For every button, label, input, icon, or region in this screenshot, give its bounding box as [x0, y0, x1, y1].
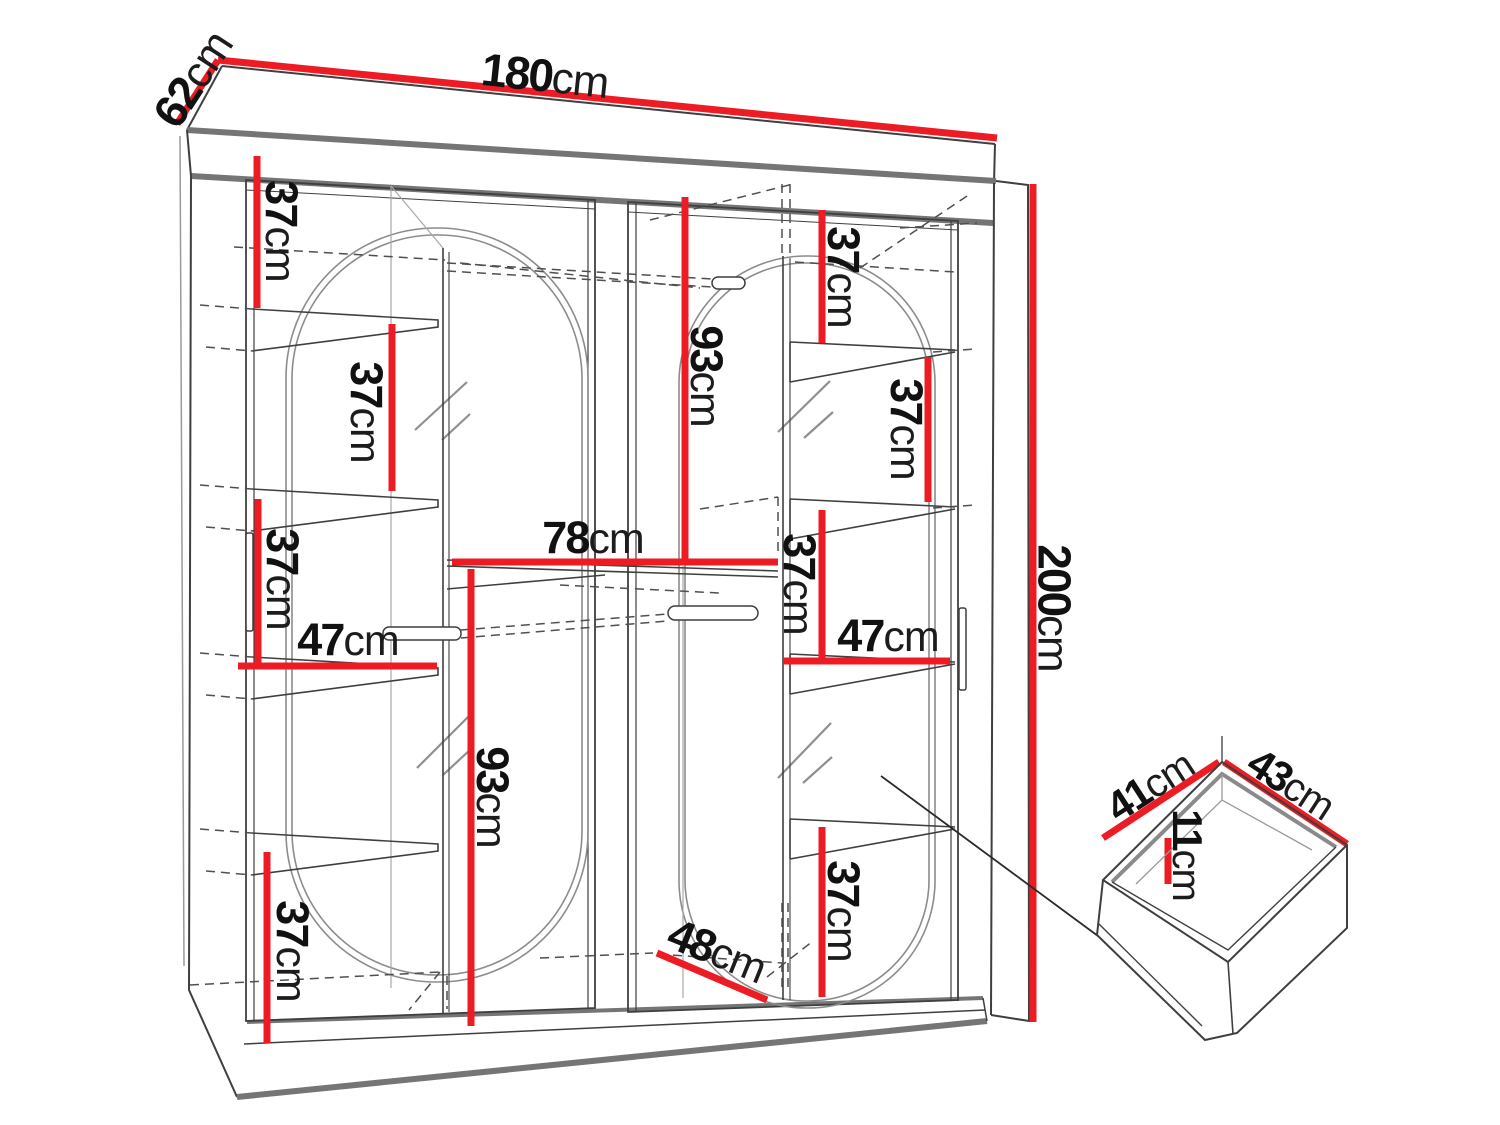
dim-line-overall-depth: [177, 60, 218, 124]
drawer-leader-line: [881, 776, 1098, 936]
dim-line-overall-width: [218, 60, 997, 138]
hanging-rod-right: [668, 606, 758, 620]
wardrobe-dimension-diagram: 180cm62cm200cm37cm37cm37cm47cm93cm37cm78…: [0, 0, 1500, 1125]
right-mirror: [679, 256, 935, 1008]
interior-dividers: [391, 186, 790, 1014]
dim-line-drawer-depth: [1103, 762, 1219, 838]
mirror-glints: [415, 381, 833, 783]
cabinet-base: [237, 998, 987, 1097]
diagram-linework: [0, 0, 1500, 1125]
left-door-handle: [246, 533, 253, 631]
hidden-edges-dashed: [190, 184, 977, 1010]
left-door: [246, 180, 595, 1021]
hanging-rods: [383, 277, 758, 640]
drawer-detail: [1097, 736, 1347, 1040]
left-shelves: [252, 309, 438, 875]
hanging-rod-left: [383, 627, 461, 640]
right-door-handle: [959, 608, 966, 690]
hanging-rod-right-top: [712, 277, 745, 289]
